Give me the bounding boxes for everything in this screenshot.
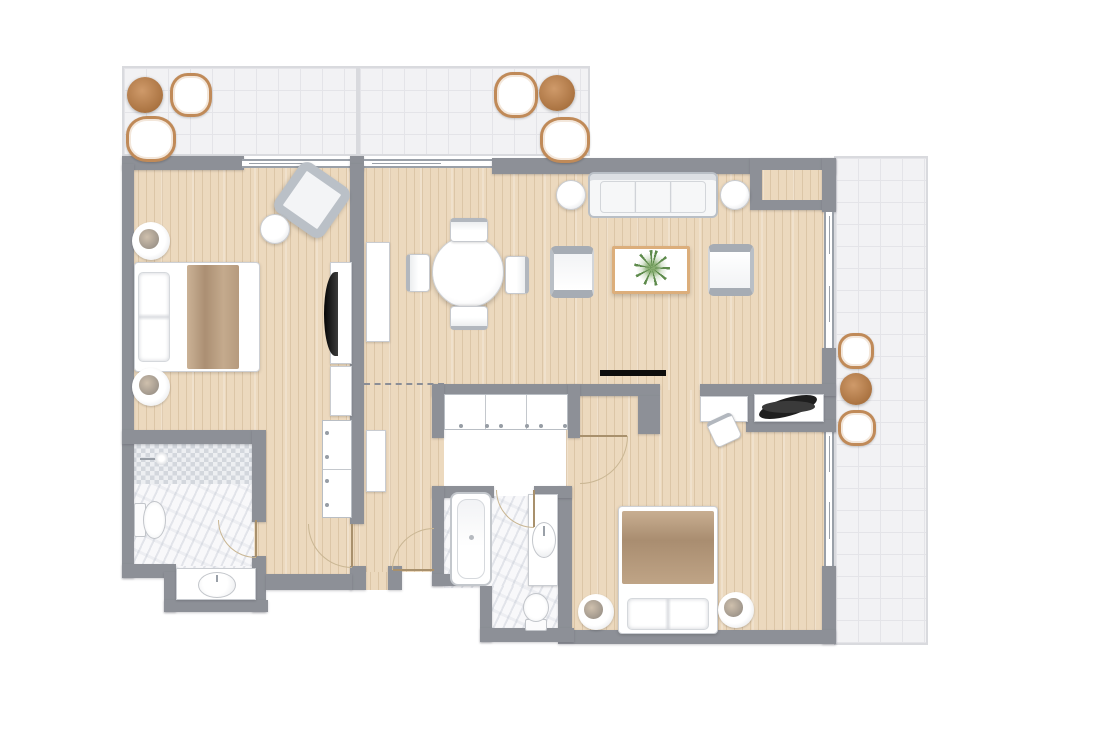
side-table-bedroom1	[260, 214, 290, 244]
shower-head	[140, 452, 168, 468]
bed-bedroom1	[134, 262, 260, 372]
wall-bath1-top	[122, 430, 254, 444]
floor-plan	[0, 0, 1111, 739]
patio-chair-5	[838, 333, 874, 369]
armchair-living-left	[550, 246, 594, 298]
toilet-bath1	[134, 498, 168, 542]
tv-wall-living	[600, 370, 666, 376]
window-bedroom2-2	[824, 498, 834, 566]
wood-inset-topright	[762, 170, 824, 200]
floor-entry	[362, 572, 390, 590]
side-table-sofa-left	[556, 180, 586, 210]
side-table-sofa-right	[720, 180, 750, 210]
sink-bath1	[198, 572, 236, 598]
ceiling-divider-dashed	[364, 383, 444, 385]
patio-chair-3	[494, 72, 538, 118]
wall-right-upper	[822, 158, 836, 212]
nightstand-lamp-1	[132, 222, 170, 260]
nightstand-lamp-2	[132, 368, 170, 406]
toilet-bath2	[521, 591, 551, 631]
cabinet-hall-small	[366, 430, 386, 492]
patio-chair-2	[126, 116, 176, 162]
patio-table-1	[127, 77, 163, 113]
window-living-2	[824, 282, 834, 348]
nightstand-lamp-4	[718, 592, 754, 628]
bed-bedroom2	[618, 506, 718, 634]
sofa-living	[588, 172, 718, 218]
closet-sliding-doors	[444, 394, 568, 430]
wall-hall-south	[266, 574, 352, 590]
patio-chair-1	[170, 73, 212, 117]
armchair-living-right	[708, 244, 754, 296]
dining-chair-north	[450, 218, 488, 242]
wall-bath1-east-upper	[252, 430, 266, 522]
wall-bedroom2-entry-east	[638, 396, 660, 434]
wardrobe-bedroom1	[322, 420, 352, 518]
wall-left	[122, 164, 134, 578]
patio-table-3	[840, 373, 872, 405]
dining-chair-south	[450, 306, 488, 330]
patio-table-2	[539, 75, 575, 111]
window-bedroom2-1	[824, 432, 834, 498]
wall-bedroom1-east-stub	[350, 566, 366, 590]
wall-alcove-south	[164, 600, 268, 612]
wall-bedroom1-east	[350, 164, 364, 524]
dining-table	[432, 236, 504, 308]
dining-chair-east	[505, 256, 529, 294]
sink-bath2	[532, 522, 556, 558]
cabinet-hall-tall	[366, 242, 390, 342]
patio-chair-4	[540, 117, 590, 163]
window-dining-balcony	[364, 159, 492, 168]
bathtub	[450, 492, 492, 586]
wall-closet-west	[432, 384, 444, 438]
plant-coffee-table	[634, 250, 670, 286]
window-bedroom1-balcony	[242, 159, 352, 168]
nightstand-lamp-3	[578, 594, 614, 630]
wall-closet-east	[568, 384, 580, 438]
patio-chair-6	[838, 410, 876, 446]
cabinet-bedroom1	[330, 366, 352, 416]
window-living-1	[824, 212, 834, 282]
wall-bedroom2-west	[558, 486, 572, 634]
balcony-divider	[356, 66, 360, 156]
dining-chair-west	[406, 254, 430, 292]
